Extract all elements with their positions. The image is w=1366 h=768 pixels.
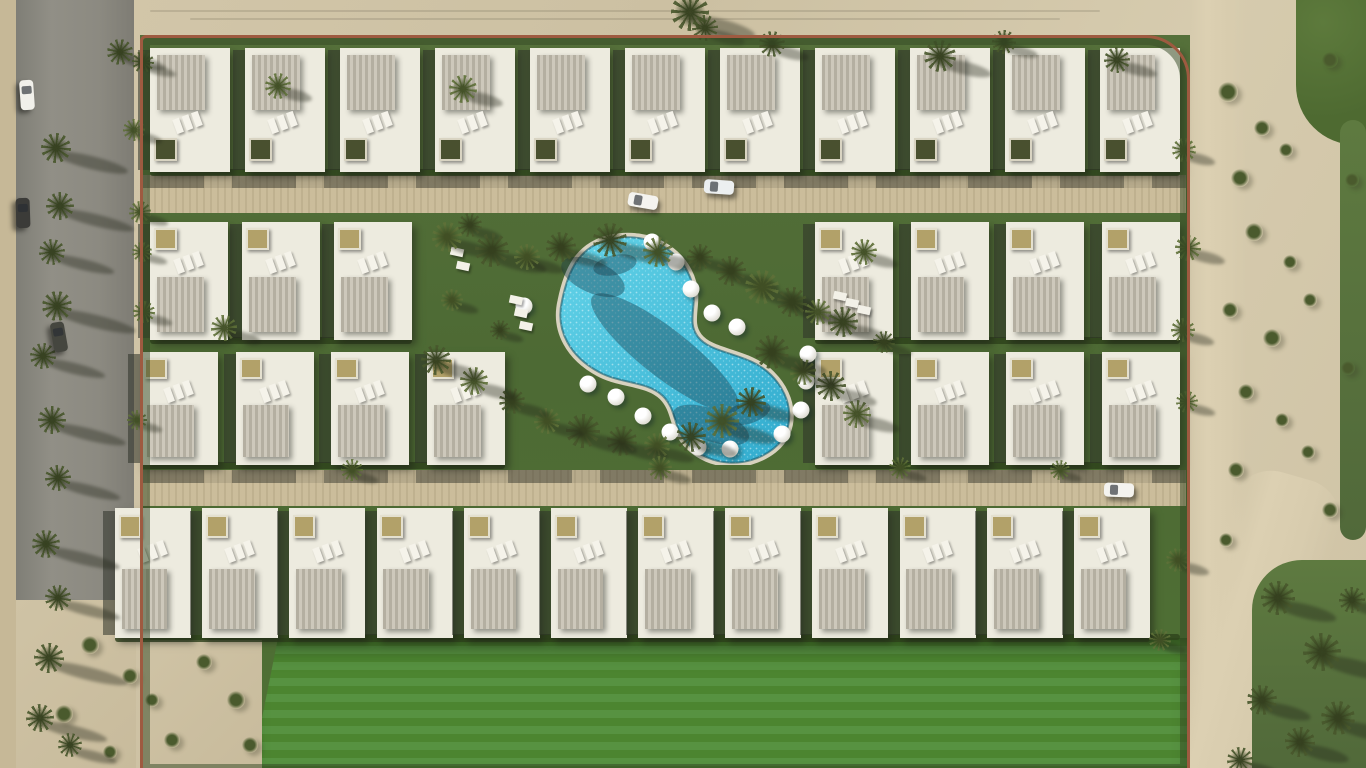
- villa: [377, 508, 453, 638]
- palm-tree: [1172, 138, 1196, 162]
- palm-tree: [1175, 235, 1201, 261]
- palm-tree: [449, 75, 477, 103]
- palm-tree: [41, 133, 71, 163]
- shrub: [164, 732, 180, 748]
- villa-loungers: [573, 540, 604, 563]
- palm-tree: [873, 331, 895, 353]
- villa-pergola: [293, 515, 315, 539]
- shrub: [1345, 173, 1359, 187]
- villa-loungers: [1009, 540, 1040, 563]
- palm-tree: [32, 530, 60, 558]
- villa-loungers: [647, 111, 678, 134]
- villa-pergola: [914, 138, 937, 161]
- palm-tree: [777, 287, 807, 317]
- villa: [1074, 508, 1150, 638]
- palm-leaves: [41, 133, 71, 163]
- shrub: [1322, 52, 1338, 68]
- villa: [551, 508, 627, 638]
- villa-loungers: [1030, 379, 1061, 402]
- villa-loungers: [932, 111, 963, 134]
- palm-tree: [705, 404, 739, 438]
- palm-tree: [132, 242, 152, 262]
- villa-loungers: [267, 111, 298, 134]
- tyre-track: [150, 10, 1100, 12]
- villa-roof: [1012, 55, 1060, 110]
- villa: [530, 48, 610, 172]
- palm-tree: [1227, 747, 1253, 768]
- villa: [1006, 222, 1084, 340]
- pool-umbrella: [704, 305, 721, 322]
- palm-tree: [755, 335, 789, 369]
- villa: [815, 48, 895, 172]
- street-upper: [140, 175, 1186, 213]
- villa: [435, 48, 515, 172]
- villa-loungers: [486, 540, 517, 563]
- villa: [331, 352, 409, 465]
- villa-loungers: [259, 379, 290, 402]
- villa-pergola: [1010, 228, 1033, 250]
- villa-pergola: [439, 138, 462, 161]
- villa-loungers: [138, 540, 169, 563]
- palm-tree: [123, 119, 145, 141]
- palm-tree: [648, 456, 672, 480]
- villa-roof: [1081, 569, 1127, 629]
- villa-roof: [558, 569, 604, 629]
- car: [15, 198, 30, 228]
- villa-pergola: [1009, 138, 1032, 161]
- villa: [638, 508, 714, 638]
- palm-tree: [992, 30, 1016, 54]
- tyre-track: [190, 18, 1060, 20]
- villa-pergola: [249, 138, 272, 161]
- villa-roof: [1013, 405, 1060, 457]
- palm-tree: [42, 291, 72, 321]
- palm-tree: [107, 39, 133, 65]
- palm-tree: [26, 704, 54, 732]
- palm-tree: [514, 244, 540, 270]
- shrub: [81, 636, 99, 654]
- villa-roof: [471, 569, 517, 629]
- palm-tree: [1303, 633, 1341, 671]
- villa-roof: [243, 405, 290, 457]
- palm-tree: [490, 320, 510, 340]
- villa-loungers: [1027, 111, 1058, 134]
- palm-tree: [593, 223, 627, 257]
- villa-pergola: [915, 358, 938, 379]
- palm-tree: [1176, 391, 1198, 413]
- car: [19, 80, 35, 111]
- villa: [202, 508, 278, 638]
- villa-loungers: [265, 251, 296, 274]
- villa-roof: [645, 569, 691, 629]
- villa: [245, 48, 325, 172]
- palm-tree: [441, 289, 463, 311]
- villa-loungers: [355, 379, 386, 402]
- villa-pergola: [629, 138, 652, 161]
- villa-loungers: [1097, 540, 1128, 563]
- shrub: [1219, 533, 1233, 547]
- villa-loungers: [457, 111, 488, 134]
- villa-pergola: [154, 228, 177, 250]
- pool-umbrella: [729, 319, 746, 336]
- palm-tree: [1166, 548, 1190, 572]
- palm-tree: [716, 256, 746, 286]
- palm-tree: [676, 422, 706, 452]
- villa-roof: [918, 405, 965, 457]
- villa: [1005, 48, 1085, 172]
- shrub: [145, 693, 159, 707]
- villa-pergola: [1010, 358, 1033, 379]
- shrub: [1238, 384, 1254, 400]
- villa-pergola: [555, 515, 577, 539]
- shrub: [1228, 462, 1244, 478]
- pool-umbrella: [635, 408, 652, 425]
- shrub: [242, 737, 258, 753]
- villa-pergola: [819, 228, 842, 250]
- villa: [1102, 222, 1180, 340]
- villa-pergola: [380, 515, 402, 539]
- villa-roof: [209, 569, 255, 629]
- villa-pergola: [335, 358, 358, 379]
- villa-loungers: [552, 111, 583, 134]
- shrub: [227, 691, 245, 709]
- villa-pergola: [1106, 358, 1129, 379]
- villa: [115, 508, 191, 638]
- villa-roof: [157, 55, 205, 110]
- shrub: [1322, 502, 1338, 518]
- shrub: [1245, 223, 1263, 241]
- villa-loungers: [1122, 111, 1153, 134]
- villa-loungers: [357, 251, 388, 274]
- villa-roof: [1013, 277, 1060, 331]
- palm-tree: [1285, 727, 1315, 757]
- villa: [242, 222, 320, 340]
- palm-tree: [745, 270, 779, 304]
- palm-tree: [132, 51, 154, 73]
- villa-roof: [906, 569, 952, 629]
- villa-roof: [632, 55, 680, 110]
- car: [1104, 482, 1134, 497]
- villa-pergola: [915, 228, 938, 250]
- villa: [464, 508, 540, 638]
- villa: [911, 352, 989, 465]
- villa: [334, 222, 412, 340]
- car: [704, 179, 735, 195]
- villa: [1102, 352, 1180, 465]
- villa-loungers: [835, 540, 866, 563]
- villa-loungers: [1125, 379, 1156, 402]
- villa-roof: [341, 277, 388, 331]
- palm-tree: [1321, 701, 1355, 735]
- villa-pergola: [1104, 138, 1127, 161]
- palm-tree: [211, 315, 237, 341]
- villa-pergola: [1078, 515, 1100, 539]
- villa-roof: [918, 277, 965, 331]
- villa-roof: [822, 55, 870, 110]
- palm-tree: [133, 301, 155, 323]
- palm-tree: [924, 40, 956, 72]
- villa: [1006, 352, 1084, 465]
- villa: [236, 352, 314, 465]
- shrub: [1301, 445, 1315, 459]
- villa-pergola: [991, 515, 1013, 539]
- palm-tree: [828, 307, 858, 337]
- pool-umbrella: [683, 281, 700, 298]
- villa-loungers: [661, 540, 692, 563]
- villa-pergola: [246, 228, 269, 250]
- shrub: [1222, 302, 1238, 318]
- villa: [987, 508, 1063, 638]
- palm-tree: [889, 457, 911, 479]
- shrub: [1231, 169, 1249, 187]
- villa-loungers: [837, 111, 868, 134]
- villa: [812, 508, 888, 638]
- palm-tree: [1339, 587, 1365, 613]
- palm-tree: [851, 239, 877, 265]
- shrub: [55, 705, 73, 723]
- palm-tree: [546, 232, 576, 262]
- pool-umbrella: [608, 389, 625, 406]
- villa-loungers: [163, 379, 194, 402]
- villa-roof: [727, 55, 775, 110]
- villa-roof: [122, 569, 168, 629]
- villa-roof: [296, 569, 342, 629]
- palm-tree: [45, 585, 71, 611]
- palm-tree: [129, 201, 151, 223]
- villa-pergola: [903, 515, 925, 539]
- villa-pergola: [344, 138, 367, 161]
- villa: [900, 508, 976, 638]
- villa-loungers: [172, 111, 203, 134]
- villa-loungers: [399, 540, 430, 563]
- palm-tree: [39, 239, 65, 265]
- villa: [720, 48, 800, 172]
- villa: [625, 48, 705, 172]
- villa-pergola: [206, 515, 228, 539]
- shrub: [1283, 255, 1297, 269]
- shrub: [1279, 143, 1293, 157]
- villa: [911, 222, 989, 340]
- palm-tree: [58, 733, 82, 757]
- villa-roof: [249, 277, 296, 331]
- palm-tree: [46, 192, 74, 220]
- villa-pergola: [240, 358, 263, 379]
- villa-pergola: [468, 515, 490, 539]
- shrub: [1303, 293, 1317, 307]
- villa-roof: [1109, 405, 1156, 457]
- villa: [725, 508, 801, 638]
- shrub: [1341, 361, 1355, 375]
- villa-pergola: [338, 228, 361, 250]
- shrub: [196, 654, 212, 670]
- villa-loungers: [748, 540, 779, 563]
- villa-roof: [338, 405, 385, 457]
- pool-umbrella: [580, 376, 597, 393]
- villa-pergola: [642, 515, 664, 539]
- villa-pergola: [534, 138, 557, 161]
- villa: [340, 48, 420, 172]
- shrub: [1218, 82, 1238, 102]
- palm-tree: [45, 465, 71, 491]
- villa: [140, 352, 218, 465]
- villa-roof: [819, 569, 865, 629]
- palm-tree: [643, 237, 673, 267]
- villa-pergola: [816, 515, 838, 539]
- villa-pergola: [819, 138, 842, 161]
- villa-loungers: [312, 540, 343, 563]
- palm-tree: [1261, 581, 1295, 615]
- palm-tree: [1171, 318, 1195, 342]
- palm-tree: [34, 643, 64, 673]
- villa-pergola: [729, 515, 751, 539]
- palm-tree: [1050, 460, 1070, 480]
- villa-roof: [383, 569, 429, 629]
- aerial-scene: [0, 0, 1366, 768]
- villa-pergola: [144, 358, 167, 379]
- villa-loungers: [1125, 251, 1156, 274]
- shrub: [1275, 413, 1289, 427]
- palm-tree: [127, 410, 147, 430]
- shrub: [1254, 120, 1270, 136]
- palm-tree: [1104, 47, 1130, 73]
- palm-leaves: [1224, 744, 1256, 768]
- villa-pergola: [119, 515, 141, 539]
- villa-roof: [537, 55, 585, 110]
- villa-loungers: [173, 251, 204, 274]
- palm-tree: [265, 73, 291, 99]
- shrub: [1263, 329, 1281, 347]
- villa-pergola: [1106, 228, 1129, 250]
- villa: [289, 508, 365, 638]
- villa-roof: [994, 569, 1040, 629]
- villa-pergola: [724, 138, 747, 161]
- palm-tree: [1149, 629, 1171, 651]
- villa-roof: [347, 55, 395, 110]
- villa-loungers: [225, 540, 256, 563]
- palm-tree: [687, 244, 713, 270]
- palm-tree: [692, 15, 718, 41]
- palm-tree: [421, 345, 451, 375]
- villa-loungers: [362, 111, 393, 134]
- villa-roof: [434, 405, 481, 457]
- villa-loungers: [742, 111, 773, 134]
- villa-roof: [1109, 277, 1156, 331]
- villa-loungers: [1030, 251, 1061, 274]
- palm-tree: [30, 343, 56, 369]
- palm-tree: [38, 406, 66, 434]
- bottom-lawn-field: [252, 638, 1190, 768]
- villa-roof: [732, 569, 778, 629]
- palm-tree: [341, 459, 363, 481]
- palm-tree: [475, 233, 509, 267]
- villa-loungers: [934, 379, 965, 402]
- palm-tree: [736, 387, 766, 417]
- villa-loungers: [934, 251, 965, 274]
- palm-tree: [759, 31, 785, 57]
- villa-loungers: [922, 540, 953, 563]
- palm-tree: [1247, 685, 1277, 715]
- palm-leaves: [1334, 582, 1366, 618]
